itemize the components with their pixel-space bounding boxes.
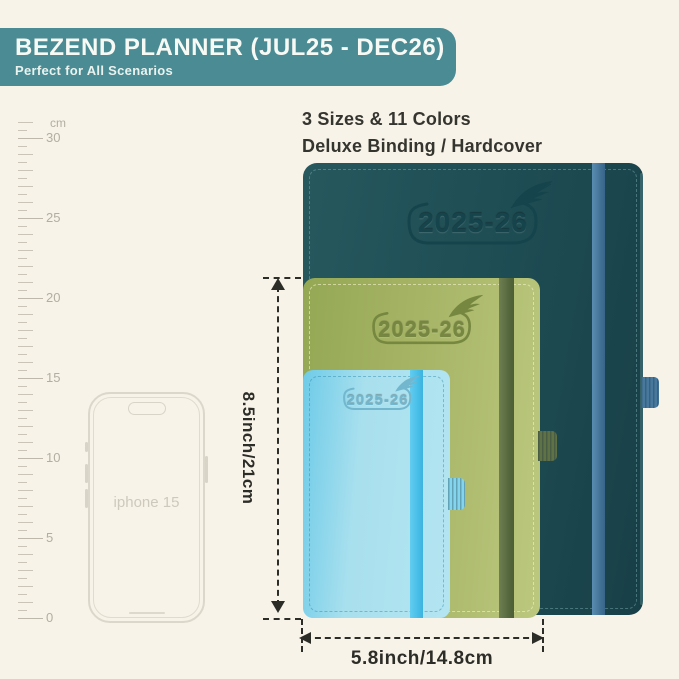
planner-small: 2025-26 — [303, 370, 450, 618]
iphone-volume-down-button — [85, 489, 88, 508]
width-dimension-label: 5.8inch/14.8cm — [351, 648, 493, 670]
title-banner: BEZEND PLANNER (JUL25 - DEC26) Perfect f… — [0, 28, 456, 86]
ruler-label-0: 0 — [46, 610, 70, 625]
ruler-major-ticks — [18, 138, 43, 620]
ruler-label-5: 5 — [46, 530, 70, 545]
iphone-outline: iphone 15 — [88, 392, 205, 623]
arrow-down-icon — [271, 601, 285, 613]
feature-line-sizes: 3 Sizes & 11 Colors — [302, 106, 542, 133]
iphone-bottom-line — [129, 612, 165, 614]
ruler-label-25: 25 — [46, 210, 70, 225]
ruler-label-10: 10 — [46, 450, 70, 465]
arrow-left-icon — [299, 632, 311, 644]
planner-small-logo: 2025-26 — [341, 385, 414, 416]
arrow-up-icon — [271, 278, 285, 290]
feather-icon — [447, 294, 485, 319]
pen-loop-ribs — [448, 478, 465, 510]
arrow-right-icon — [532, 632, 544, 644]
dimension-line-horizontal — [305, 637, 539, 639]
ruler-label-30: 30 — [46, 130, 70, 145]
product-title: BEZEND PLANNER (JUL25 - DEC26) — [15, 35, 456, 61]
feather-icon — [394, 375, 421, 393]
planner-medium-elastic-band — [499, 278, 514, 618]
planner-large-pen-loop — [641, 377, 659, 408]
planner-medium-pen-loop — [538, 431, 557, 461]
ruler-unit-label: cm — [50, 116, 66, 130]
height-dimension-label: 8.5inch/21cm — [238, 392, 258, 505]
planner-large-logo: 2025-26 — [403, 197, 543, 249]
product-image: BEZEND PLANNER (JUL25 - DEC26) Perfect f… — [0, 0, 679, 679]
iphone-dynamic-island — [128, 402, 166, 415]
feature-line-binding: Deluxe Binding / Hardcover — [302, 133, 542, 160]
planner-large-elastic-band — [592, 163, 605, 615]
planner-small-pen-loop — [448, 478, 465, 510]
iphone-power-button — [205, 456, 208, 483]
ruler-label-15: 15 — [46, 370, 70, 385]
planner-medium-logo: 2025-26 — [369, 308, 475, 352]
iphone-volume-up-button — [85, 464, 88, 483]
feature-text: 3 Sizes & 11 Colors Deluxe Binding / Har… — [302, 106, 542, 160]
pen-loop-ribs — [538, 431, 557, 461]
iphone-mute-switch — [85, 442, 88, 452]
iphone-label: iphone 15 — [90, 494, 203, 511]
product-subtitle: Perfect for All Scenarios — [15, 63, 456, 78]
feather-icon — [509, 180, 555, 210]
dimension-line-vertical — [277, 286, 279, 606]
pen-loop-ribs — [641, 377, 659, 408]
ruler-label-20: 20 — [46, 290, 70, 305]
dimension-tick — [263, 618, 301, 620]
